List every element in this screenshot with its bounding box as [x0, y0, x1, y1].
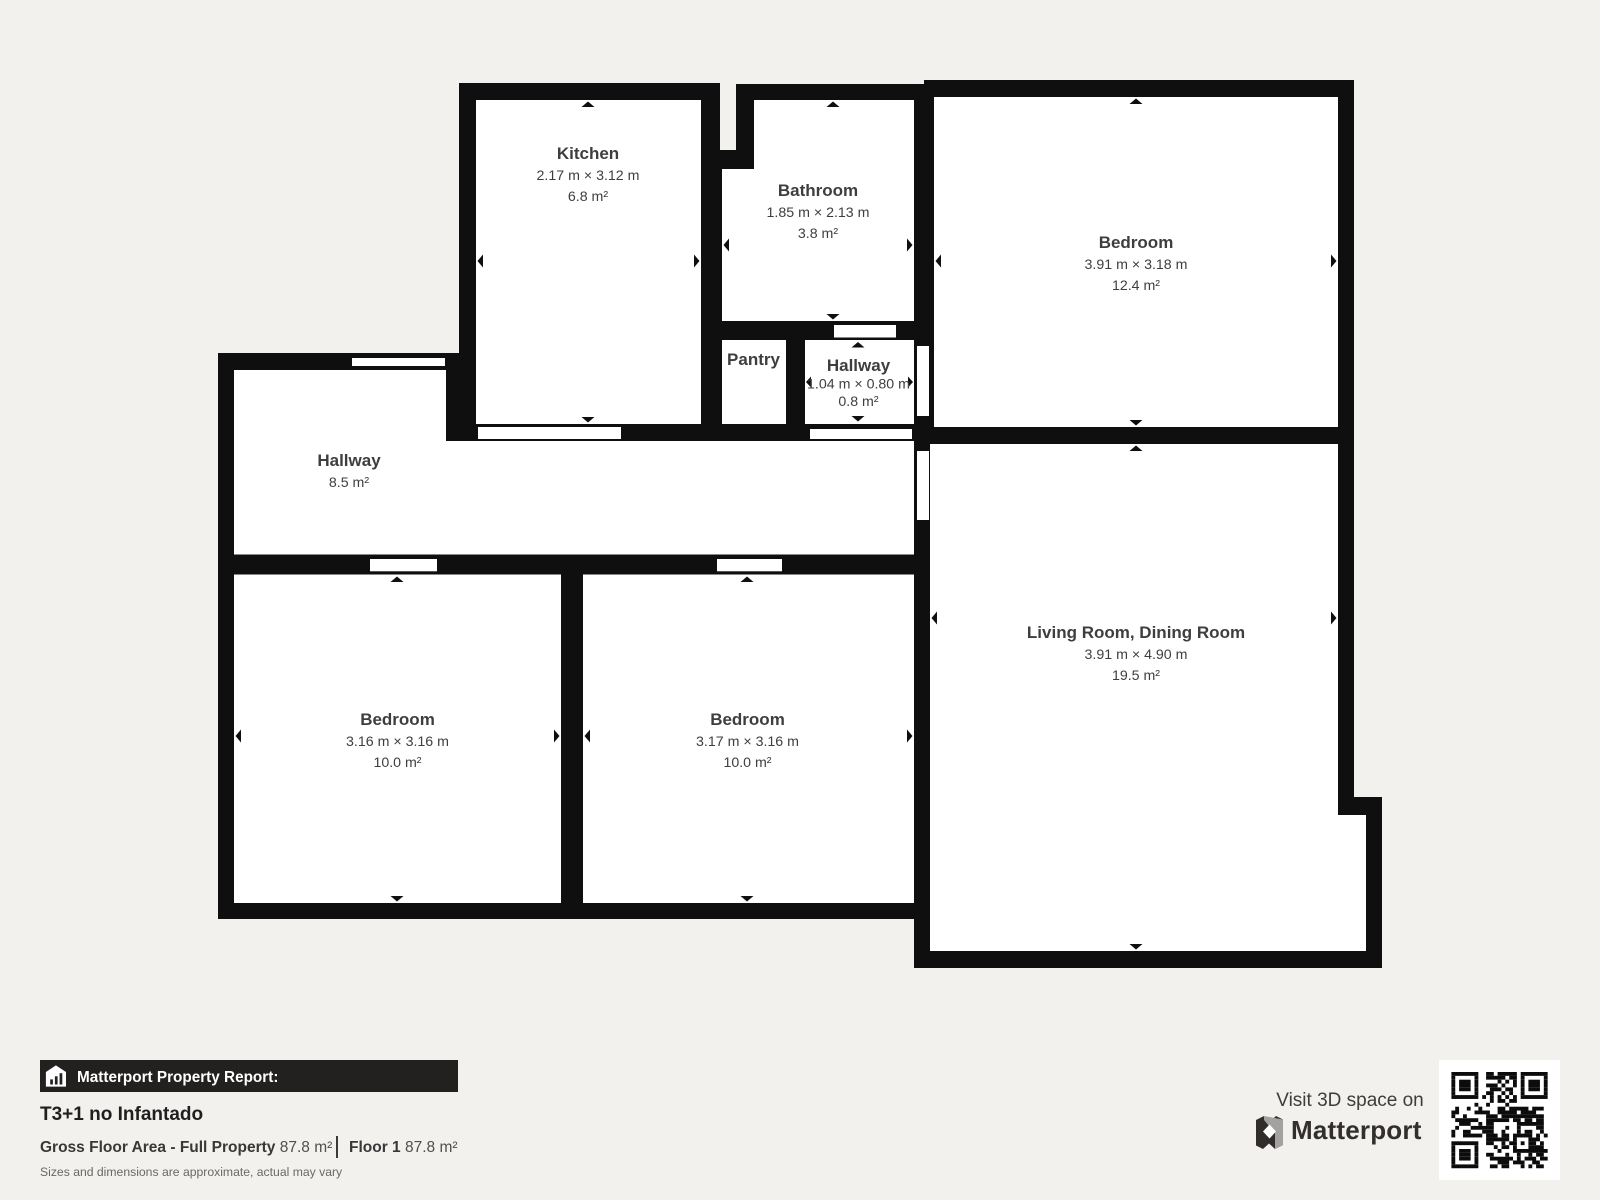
svg-text:Floor 1 87.8 m²: Floor 1 87.8 m²: [349, 1139, 458, 1156]
svg-text:Bedroom: Bedroom: [710, 710, 785, 729]
svg-text:8.5 m²: 8.5 m²: [329, 475, 369, 491]
svg-text:3.8 m²: 3.8 m²: [798, 226, 838, 242]
svg-text:3.16 m × 3.16 m: 3.16 m × 3.16 m: [346, 734, 449, 750]
svg-text:T3+1 no Infantado: T3+1 no Infantado: [40, 1104, 203, 1125]
svg-text:3.91 m × 3.18 m: 3.91 m × 3.18 m: [1085, 257, 1188, 273]
svg-text:Pantry: Pantry: [727, 350, 780, 369]
svg-text:Living Room, Dining Room: Living Room, Dining Room: [1027, 623, 1245, 642]
svg-text:Bathroom: Bathroom: [778, 181, 858, 200]
svg-text:Gross Floor Area - Full Proper: Gross Floor Area - Full Property 87.8 m²: [40, 1139, 332, 1156]
svg-text:3.17 m × 3.16 m: 3.17 m × 3.16 m: [696, 734, 799, 750]
svg-text:3.91 m × 4.90 m: 3.91 m × 4.90 m: [1085, 647, 1188, 663]
svg-text:Matterport Property Report:: Matterport Property Report:: [77, 1069, 278, 1086]
svg-text:Kitchen: Kitchen: [557, 144, 619, 163]
svg-text:10.0 m²: 10.0 m²: [373, 755, 421, 771]
svg-text:Visit 3D space on: Visit 3D space on: [1276, 1090, 1424, 1111]
svg-text:Sizes and dimensions are appro: Sizes and dimensions are approximate, ac…: [40, 1165, 343, 1179]
svg-text:19.5 m²: 19.5 m²: [1112, 668, 1160, 684]
svg-text:Bedroom: Bedroom: [1099, 233, 1174, 252]
svg-text:12.4 m²: 12.4 m²: [1112, 278, 1160, 294]
svg-text:6.8 m²: 6.8 m²: [568, 189, 608, 205]
svg-text:2.17 m × 3.12 m: 2.17 m × 3.12 m: [537, 168, 640, 184]
svg-text:1.04 m × 0.80 m: 1.04 m × 0.80 m: [807, 377, 910, 393]
svg-text:Bedroom: Bedroom: [360, 710, 435, 729]
svg-text:0.8 m²: 0.8 m²: [838, 394, 878, 410]
svg-text:Matterport: Matterport: [1291, 1115, 1422, 1145]
svg-text:Hallway: Hallway: [317, 451, 381, 470]
svg-text:1.85 m × 2.13 m: 1.85 m × 2.13 m: [767, 205, 870, 221]
svg-text:Hallway: Hallway: [827, 356, 891, 375]
svg-text:10.0 m²: 10.0 m²: [723, 755, 771, 771]
